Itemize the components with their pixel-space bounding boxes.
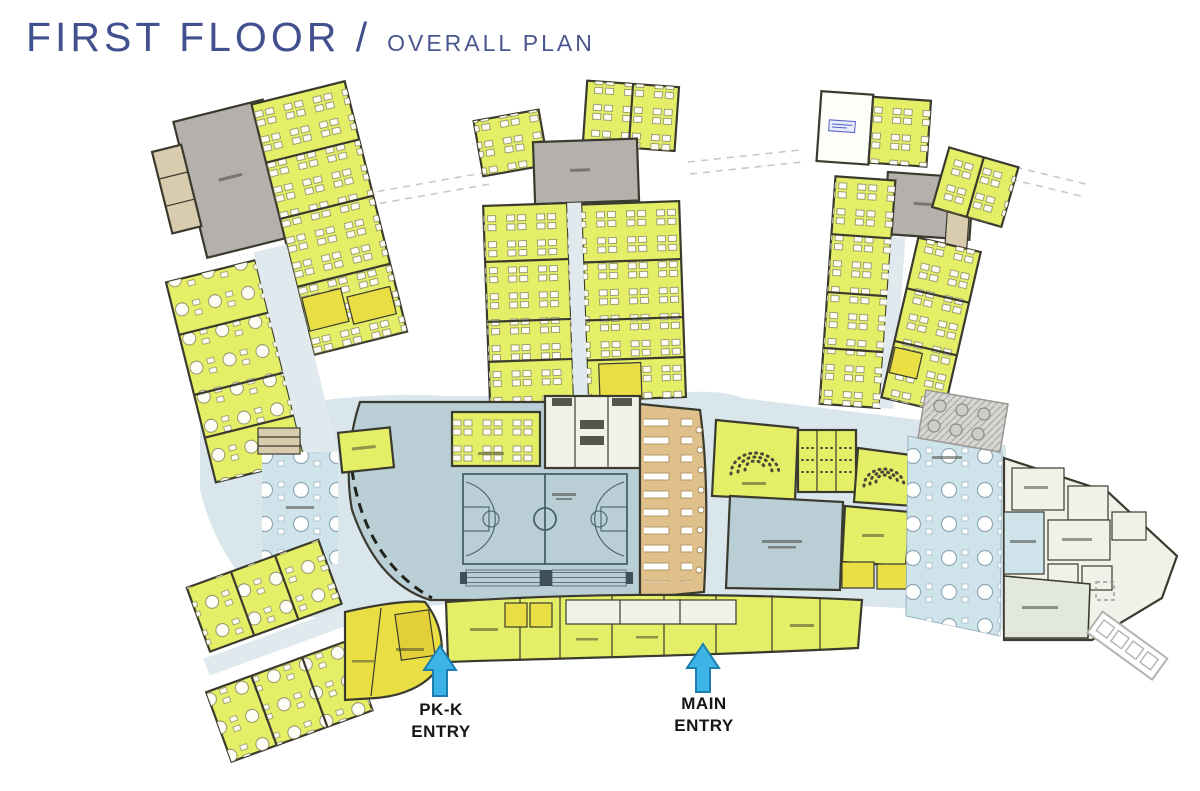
vestibule bbox=[258, 428, 300, 454]
main-entry-label-line2: ENTRY bbox=[659, 715, 749, 737]
bleachers bbox=[460, 570, 633, 586]
support-room bbox=[889, 347, 922, 379]
locker-stair-block bbox=[545, 396, 640, 468]
wing-right bbox=[800, 91, 1023, 416]
floor-plan-drawing bbox=[0, 0, 1200, 791]
pk-entry-label: PK-K ENTRY bbox=[396, 699, 486, 743]
loading-dock bbox=[1087, 612, 1167, 680]
multipurpose-room bbox=[726, 496, 843, 590]
support-room bbox=[599, 363, 642, 398]
wing-middle bbox=[472, 78, 689, 405]
courtyard-middle bbox=[533, 139, 639, 205]
music-room-1 bbox=[712, 420, 798, 500]
admin-suite bbox=[446, 594, 862, 662]
main-entry-label: MAIN ENTRY bbox=[659, 693, 749, 737]
kitchen-service bbox=[1004, 458, 1177, 680]
cafeteria bbox=[640, 404, 706, 598]
floor-plan-page: FIRST FLOOR / OVERALL PLAN bbox=[0, 0, 1200, 791]
dining-commons bbox=[906, 436, 1002, 636]
pk-entry-label-line1: PK-K bbox=[396, 699, 486, 721]
pk-entry-label-line2: ENTRY bbox=[396, 721, 486, 743]
music-practice-room bbox=[338, 427, 394, 472]
main-entry-label-line1: MAIN bbox=[659, 693, 749, 715]
